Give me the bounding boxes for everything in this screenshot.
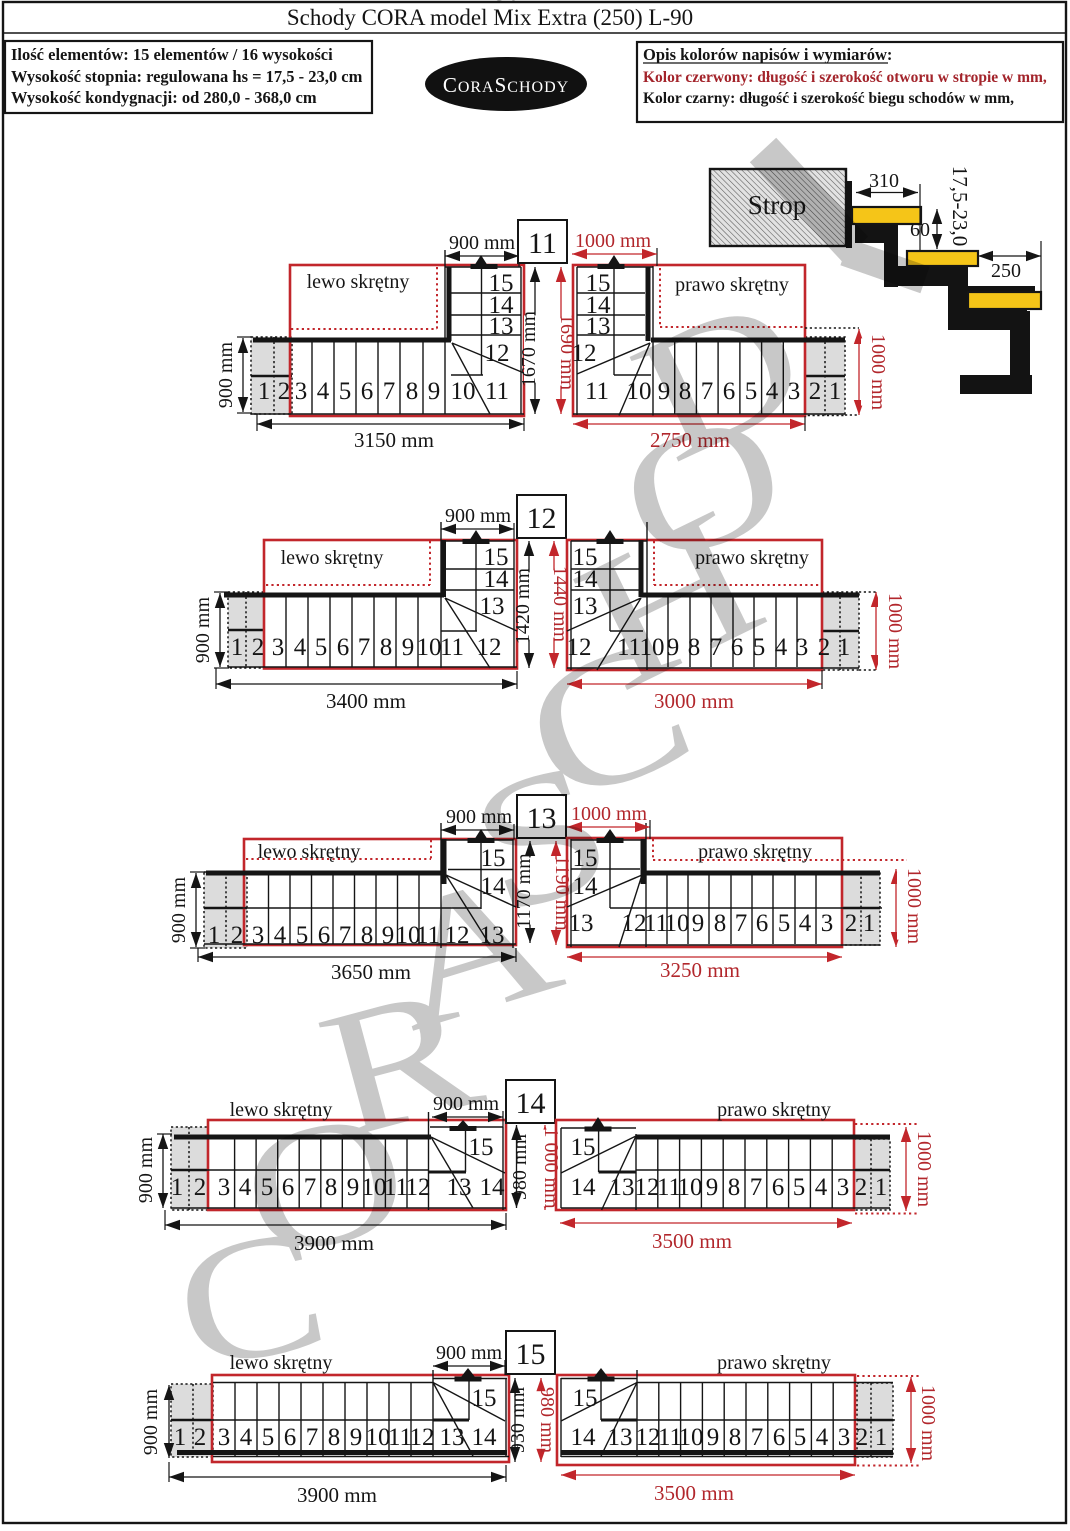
svg-text:900 mm: 900 mm xyxy=(445,505,512,527)
svg-text:12: 12 xyxy=(485,340,510,367)
svg-text:3500 mm: 3500 mm xyxy=(652,1229,732,1253)
svg-text:1000 mm: 1000 mm xyxy=(917,1385,939,1462)
svg-text:5: 5 xyxy=(793,1174,806,1201)
svg-text:Ilość elementów: 15 elementów: Ilość elementów: 15 elementów / 16 wysok… xyxy=(11,45,333,64)
svg-text:14: 14 xyxy=(571,1174,597,1201)
svg-text:7: 7 xyxy=(339,922,352,949)
svg-text:1: 1 xyxy=(838,634,851,661)
svg-text:4: 4 xyxy=(815,1174,828,1201)
svg-text:14: 14 xyxy=(484,566,510,593)
svg-text:8: 8 xyxy=(361,922,374,949)
svg-text:3400 mm: 3400 mm xyxy=(326,689,406,713)
svg-text:14: 14 xyxy=(516,1087,546,1120)
svg-text:13: 13 xyxy=(610,1174,635,1201)
svg-text:1: 1 xyxy=(829,378,842,405)
svg-text:3: 3 xyxy=(272,634,285,661)
svg-text:3: 3 xyxy=(218,1424,231,1451)
svg-text:3: 3 xyxy=(252,922,265,949)
svg-text:lewo skrętny: lewo skrętny xyxy=(307,271,410,293)
svg-text:2: 2 xyxy=(252,634,265,661)
svg-text:8: 8 xyxy=(714,910,727,937)
svg-text:5: 5 xyxy=(296,922,309,949)
svg-text:310: 310 xyxy=(869,170,899,192)
svg-text:12: 12 xyxy=(527,502,557,535)
svg-text:900 mm: 900 mm xyxy=(140,1389,162,1456)
svg-text:13: 13 xyxy=(447,1174,472,1201)
svg-text:9: 9 xyxy=(706,1174,719,1201)
svg-text:9: 9 xyxy=(692,910,705,937)
svg-text:3250 mm: 3250 mm xyxy=(660,958,740,982)
svg-text:14: 14 xyxy=(472,1424,498,1451)
svg-text:1000 mm: 1000 mm xyxy=(867,334,889,411)
svg-text:1000 mm: 1000 mm xyxy=(903,868,925,945)
svg-text:14: 14 xyxy=(480,1174,506,1201)
svg-text:1000 mm: 1000 mm xyxy=(884,593,906,670)
svg-text:10: 10 xyxy=(665,910,690,937)
svg-text:2: 2 xyxy=(194,1424,207,1451)
svg-text:15: 15 xyxy=(516,1338,546,1371)
svg-text:900 mm: 900 mm xyxy=(168,877,190,944)
svg-text:15: 15 xyxy=(571,1134,596,1161)
svg-text:13: 13 xyxy=(440,1424,465,1451)
svg-text:4: 4 xyxy=(274,922,287,949)
svg-text:980 mm: 980 mm xyxy=(509,1134,531,1201)
svg-text:2: 2 xyxy=(856,1424,869,1451)
svg-text:11: 11 xyxy=(528,227,557,260)
svg-text:11: 11 xyxy=(485,378,509,405)
svg-text:11: 11 xyxy=(388,1424,412,1451)
svg-text:15: 15 xyxy=(472,1385,497,1412)
svg-text:10: 10 xyxy=(678,1174,703,1201)
svg-text:5: 5 xyxy=(315,634,328,661)
svg-text:6: 6 xyxy=(361,378,374,405)
svg-text:13: 13 xyxy=(480,593,505,620)
svg-text:1: 1 xyxy=(875,1424,888,1451)
svg-text:900 mm: 900 mm xyxy=(436,1342,503,1364)
svg-text:7: 7 xyxy=(383,378,396,405)
svg-text:9: 9 xyxy=(350,1424,363,1451)
svg-text:8: 8 xyxy=(406,378,419,405)
svg-text:6: 6 xyxy=(756,910,769,937)
svg-text:2: 2 xyxy=(194,1174,207,1201)
svg-text:12: 12 xyxy=(636,1424,661,1451)
svg-text:1420 mm: 1420 mm xyxy=(512,568,534,645)
svg-text:17,5-23,0: 17,5-23,0 xyxy=(948,166,972,247)
svg-text:4: 4 xyxy=(799,910,812,937)
svg-text:4: 4 xyxy=(317,378,330,405)
svg-text:1: 1 xyxy=(174,1424,187,1451)
svg-text:12: 12 xyxy=(635,1174,660,1201)
svg-text:12: 12 xyxy=(572,340,597,367)
svg-text:1: 1 xyxy=(231,634,244,661)
svg-text:980 mm: 980 mm xyxy=(536,1387,558,1454)
svg-text:900 mm: 900 mm xyxy=(449,232,516,254)
svg-text:9: 9 xyxy=(428,378,441,405)
svg-text:7: 7 xyxy=(751,1424,764,1451)
svg-text:10: 10 xyxy=(366,1424,391,1451)
svg-text:2: 2 xyxy=(278,378,291,405)
svg-text:11: 11 xyxy=(585,378,609,405)
svg-text:lewo skrętny: lewo skrętny xyxy=(258,841,361,863)
svg-text:Opis kolorów napisów i wymiaró: Opis kolorów napisów i wymiarów: xyxy=(643,45,892,64)
svg-text:3: 3 xyxy=(837,1174,850,1201)
svg-text:lewo skrętny: lewo skrętny xyxy=(281,547,384,569)
svg-text:2: 2 xyxy=(855,1174,868,1201)
svg-text:290: 290 xyxy=(482,0,520,6)
svg-text:6: 6 xyxy=(284,1424,297,1451)
svg-text:8: 8 xyxy=(729,1424,742,1451)
svg-text:1: 1 xyxy=(171,1174,184,1201)
svg-text:5: 5 xyxy=(262,1424,275,1451)
svg-text:9: 9 xyxy=(707,1424,720,1451)
svg-text:Wysokość stopnia: regulowana: Wysokość stopnia: regulowana hs = 17,5 -… xyxy=(11,67,363,86)
svg-text:6: 6 xyxy=(773,1424,786,1451)
svg-text:8: 8 xyxy=(728,1174,741,1201)
svg-text:7: 7 xyxy=(750,1174,763,1201)
svg-text:1: 1 xyxy=(258,378,271,405)
svg-text:6: 6 xyxy=(337,634,350,661)
svg-text:6: 6 xyxy=(318,922,331,949)
svg-text:900 mm: 900 mm xyxy=(135,1137,157,1204)
svg-text:5: 5 xyxy=(794,1424,807,1451)
svg-text:4: 4 xyxy=(240,1424,253,1451)
svg-text:3: 3 xyxy=(838,1424,851,1451)
svg-text:1: 1 xyxy=(875,1174,888,1201)
svg-text:7: 7 xyxy=(735,910,748,937)
svg-text:7: 7 xyxy=(358,634,371,661)
svg-text:1000 mm: 1000 mm xyxy=(913,1131,935,1208)
svg-text:1: 1 xyxy=(863,910,876,937)
svg-text:3: 3 xyxy=(821,910,834,937)
svg-text:8: 8 xyxy=(328,1424,341,1451)
svg-text:13: 13 xyxy=(586,313,611,340)
svg-text:5: 5 xyxy=(778,910,791,937)
svg-text:15: 15 xyxy=(573,1385,598,1412)
svg-text:6: 6 xyxy=(772,1174,785,1201)
svg-text:14: 14 xyxy=(571,1424,597,1451)
svg-text:Kolor czarny: długość i szerok: Kolor czarny: długość i szerokość biegu … xyxy=(643,90,1014,107)
svg-text:prawo skrętny: prawo skrętny xyxy=(698,841,812,863)
svg-text:900 mm: 900 mm xyxy=(215,342,237,409)
svg-text:5: 5 xyxy=(339,378,352,405)
svg-text:8: 8 xyxy=(380,634,393,661)
svg-text:12: 12 xyxy=(410,1424,435,1451)
svg-text:13: 13 xyxy=(608,1424,633,1451)
svg-text:Wysokość kondygnacji: od 280,0: Wysokość kondygnacji: od 280,0 - 368,0 c… xyxy=(11,88,317,107)
svg-text:3150 mm: 3150 mm xyxy=(354,428,434,452)
svg-text:prawo skrętny: prawo skrętny xyxy=(717,1352,831,1374)
svg-text:3: 3 xyxy=(295,378,308,405)
svg-text:900 mm: 900 mm xyxy=(192,597,214,664)
svg-text:930 mm: 930 mm xyxy=(507,1387,529,1454)
svg-text:1000 mm: 1000 mm xyxy=(575,230,652,252)
svg-text:7: 7 xyxy=(306,1424,319,1451)
svg-text:3900 mm: 3900 mm xyxy=(297,1483,377,1507)
svg-text:2: 2 xyxy=(818,634,831,661)
svg-text:Kolor czerwony: długość i szer: Kolor czerwony: długość i szerokość otwo… xyxy=(643,69,1047,86)
svg-text:3500 mm: 3500 mm xyxy=(654,1481,734,1505)
svg-text:1: 1 xyxy=(208,922,221,949)
svg-text:11: 11 xyxy=(440,634,464,661)
svg-text:250: 250 xyxy=(991,260,1021,282)
svg-text:2: 2 xyxy=(845,910,858,937)
svg-text:3: 3 xyxy=(218,1174,231,1201)
svg-text:1 000 mm: 1 000 mm xyxy=(540,1127,562,1209)
svg-text:Schody CORA model Mix Extra (2: Schody CORA model Mix Extra (250) L-90 xyxy=(287,5,693,30)
svg-text:3: 3 xyxy=(796,634,809,661)
svg-text:13: 13 xyxy=(489,313,514,340)
svg-text:10: 10 xyxy=(417,634,442,661)
svg-text:9: 9 xyxy=(402,634,415,661)
svg-text:4: 4 xyxy=(816,1424,829,1451)
svg-text:prawo skrętny: prawo skrętny xyxy=(717,1099,831,1121)
svg-text:10: 10 xyxy=(451,378,476,405)
svg-text:60: 60 xyxy=(910,219,930,241)
svg-text:2: 2 xyxy=(231,922,244,949)
svg-text:10: 10 xyxy=(679,1424,704,1451)
svg-text:1670 mm: 1670 mm xyxy=(518,311,540,388)
svg-text:4: 4 xyxy=(294,634,307,661)
